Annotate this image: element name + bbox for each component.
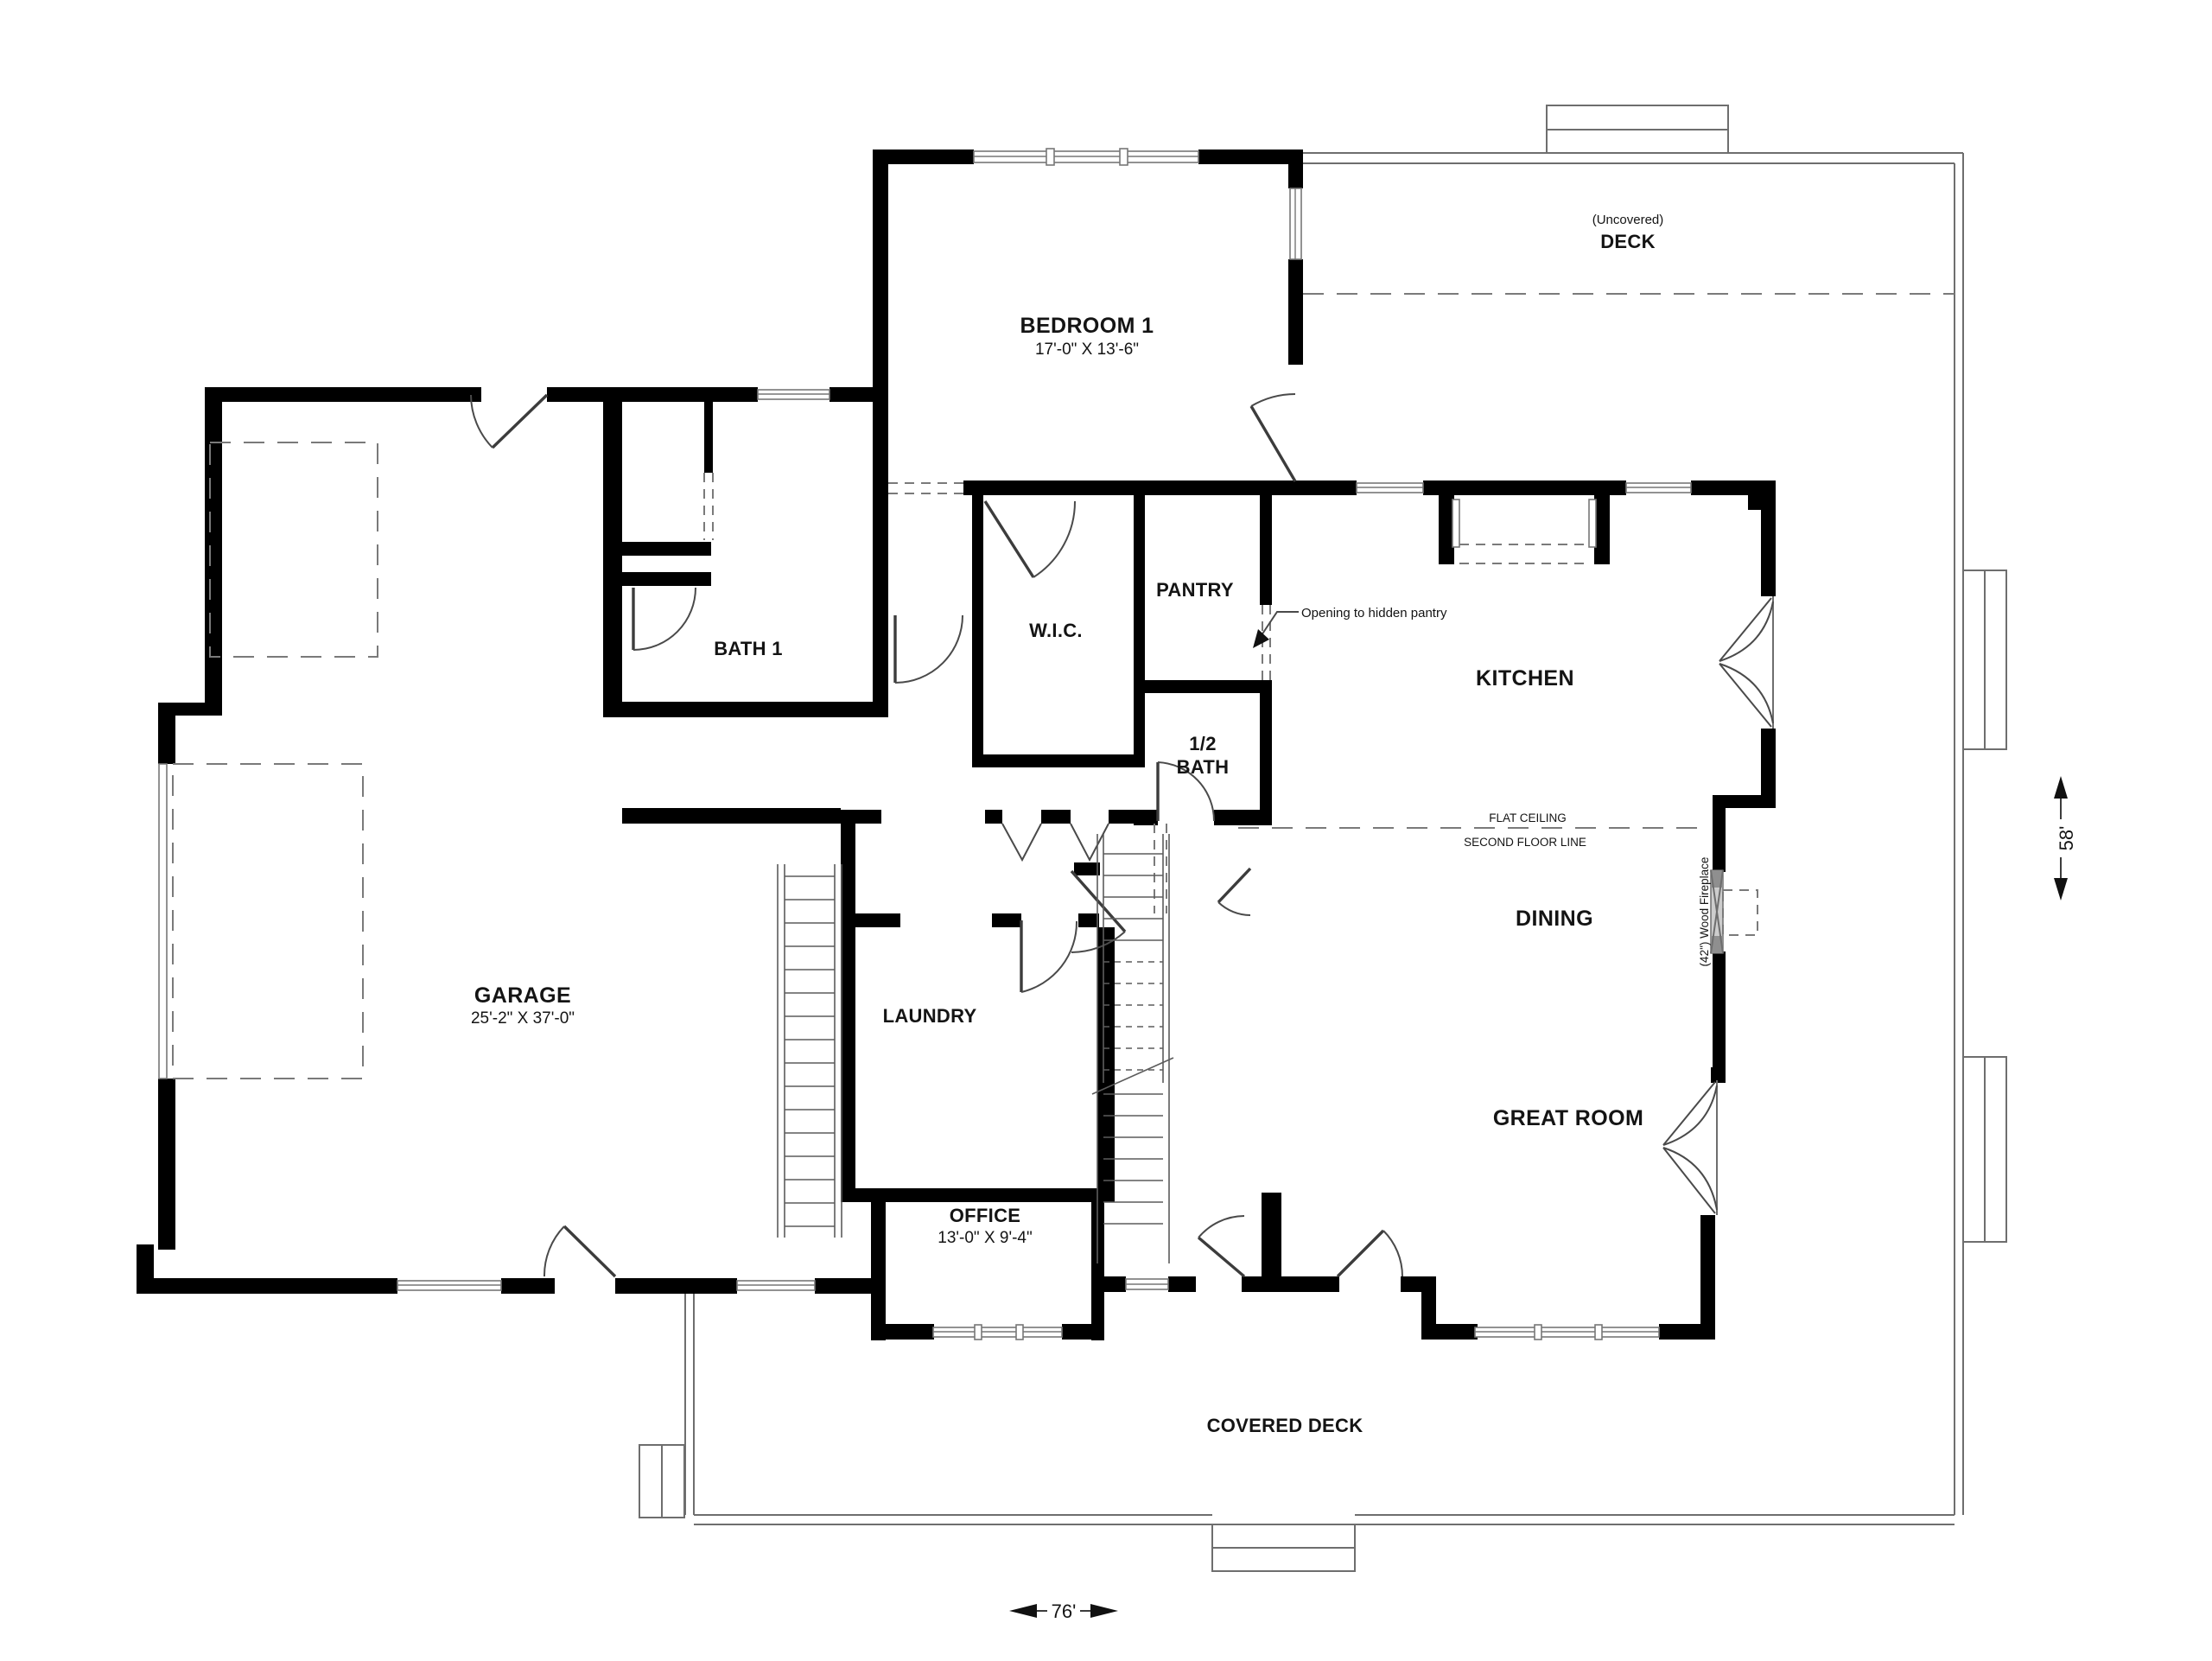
garage-bay-dashed-1 bbox=[210, 442, 378, 657]
room-label-deck: DECK bbox=[1600, 231, 1656, 252]
room-label-office: OFFICE bbox=[950, 1205, 1020, 1226]
room-label-wic: W.I.C. bbox=[1029, 620, 1083, 641]
room-label-half-bath-1: 1/2 bbox=[1189, 733, 1216, 754]
room-label-laundry: LAUNDRY bbox=[883, 1005, 977, 1027]
annotation-hidden-pantry: Opening to hidden pantry bbox=[1301, 606, 1447, 620]
room-label-dining: DINING bbox=[1516, 907, 1593, 931]
room-label-covered-deck: COVERED DECK bbox=[1207, 1415, 1363, 1436]
room-dims-office: 13'-0" X 9'-4" bbox=[938, 1229, 1032, 1247]
dashed-lines bbox=[173, 442, 1709, 1079]
room-label-bedroom1: BEDROOM 1 bbox=[1020, 314, 1154, 338]
width-dimension-label: 76' bbox=[1052, 1601, 1077, 1622]
room-label-half-bath-2: BATH bbox=[1177, 756, 1230, 778]
fireplace-hearth-dashed bbox=[1723, 890, 1758, 935]
entry-door-1 bbox=[1198, 1216, 1244, 1238]
depth-dimension-label: 58' bbox=[2056, 826, 2077, 851]
garage-porch-door bbox=[544, 1226, 564, 1276]
windows bbox=[159, 149, 1773, 1340]
entry-door-2 bbox=[1383, 1231, 1402, 1276]
hall-closet-door bbox=[1218, 902, 1250, 915]
annotation-fireplace: (42") Wood Fireplace bbox=[1698, 857, 1711, 967]
bedroom-hall-door bbox=[895, 615, 963, 683]
bath-closet-door bbox=[633, 588, 696, 650]
deck-note: (Uncovered) bbox=[1592, 213, 1664, 227]
room-label-great-room: GREAT ROOM bbox=[1493, 1106, 1643, 1130]
room-label-pantry: PANTRY bbox=[1156, 579, 1234, 601]
laundry-door bbox=[1021, 921, 1077, 992]
hidden-pantry-leader bbox=[1253, 612, 1299, 648]
annotation-second-floor-line: SECOND FLOOR LINE bbox=[1464, 836, 1586, 849]
room-label-bath1: BATH 1 bbox=[714, 638, 783, 659]
floor-plan-page: 58' 76' (Uncovered) DECK BEDROOM 1 17'-0… bbox=[0, 0, 2212, 1661]
dimension-depth: 58' bbox=[2054, 776, 2077, 901]
stair-garage bbox=[778, 864, 842, 1238]
garage-bay-dashed-2 bbox=[173, 764, 363, 1079]
floor-plan-drawing: 58' 76' (Uncovered) DECK BEDROOM 1 17'-0… bbox=[0, 0, 2212, 1661]
hall-vdoor-1 bbox=[1002, 824, 1041, 860]
room-label-garage: GARAGE bbox=[474, 983, 571, 1008]
garage-exterior-door bbox=[471, 395, 493, 448]
dimension-width: 76' bbox=[1009, 1601, 1118, 1622]
room-dims-bedroom1: 17'-0" X 13'-6" bbox=[1035, 340, 1139, 359]
room-label-kitchen: KITCHEN bbox=[1476, 666, 1574, 690]
annotation-flat-ceiling: FLAT CEILING bbox=[1489, 811, 1567, 824]
bedroom-deck-door bbox=[1251, 394, 1295, 406]
wic-door bbox=[1033, 501, 1075, 577]
fireplace bbox=[1711, 870, 1758, 953]
room-dims-garage: 25'-2" X 37'-0" bbox=[471, 1009, 575, 1028]
walls bbox=[137, 150, 1776, 1340]
